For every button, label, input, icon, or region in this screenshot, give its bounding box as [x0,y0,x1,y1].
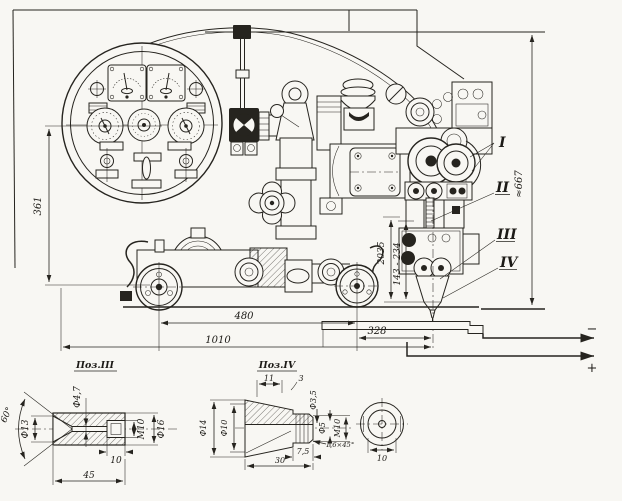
dim-f10: Ф10 [220,420,229,437]
callout-I: I [498,135,506,151]
dim-30: 30 [275,456,285,465]
polarity-wires: − + [323,322,597,376]
dim-361: 361 [33,196,44,215]
dim-75: 7,5 [297,447,310,456]
detail-iv: Поз.IV 11 3 Ф14 Ф10 Ф3,5 Ф5 М10 1,6×45° … [199,360,408,470]
dim-m10: М10 [137,418,147,440]
dim-60deg: 60° [0,406,15,425]
torch-slide [317,96,341,150]
selector-dial-right [168,108,204,144]
dim-range: 143 - 234 [393,242,403,285]
dim-45: 45 [82,471,95,481]
dim-f47: Ф4,7 [73,386,83,408]
detail-iii-title: Поз.III [75,360,115,371]
dim-1010: 1010 [205,335,231,346]
dim-f35: Ф3,5 [309,390,318,409]
plus-terminal-label: + [587,361,598,376]
drawing-canvas: − + 361 ≈667 2035 143 - 234 [0,0,622,501]
dim-f13: Ф13 [21,419,31,438]
wire-feed-head [396,82,492,230]
dim-f14: Ф14 [199,420,208,437]
dim-11: 11 [264,374,274,383]
carriage [120,228,545,310]
dim-chamfer: 1,6×45° [326,441,355,449]
voltmeter-gauge [108,65,146,101]
label-plate [100,142,123,150]
minus-terminal-label: − [587,322,598,337]
torch-clamp [399,228,479,278]
dim-667: ≈667 [514,170,525,198]
callout-II: II [495,180,510,196]
dim-328: 328 [367,326,386,337]
detail-iv-title: Поз.IV [258,360,297,371]
column-assembly [229,81,316,239]
selector-dial-center [128,109,160,141]
engineering-drawing: − + 361 ≈667 2035 143 - 234 [0,0,622,501]
dim-480: 480 [233,311,254,322]
callout-III: III [496,227,517,243]
dim-10: 10 [110,456,122,466]
detail-iv-end-view: 10 [356,398,408,463]
gas-valve [341,79,406,130]
control-panel [62,43,222,203]
ammeter-gauge [147,65,185,101]
dim-dia10: 10 [377,454,387,463]
dim-f5: Ф5 [318,422,327,434]
dim-m10-iv: М10 [333,419,342,438]
dim-f16: Ф16 [157,419,167,438]
detail-iii: Поз.III 60° Ф13 Ф4,7 М10 Ф16 10 45 [0,360,180,485]
dim-2035: 2035 [377,241,387,265]
label-plate [168,142,191,150]
dim-3: 3 [298,374,303,383]
callout-IV: IV [499,255,520,271]
